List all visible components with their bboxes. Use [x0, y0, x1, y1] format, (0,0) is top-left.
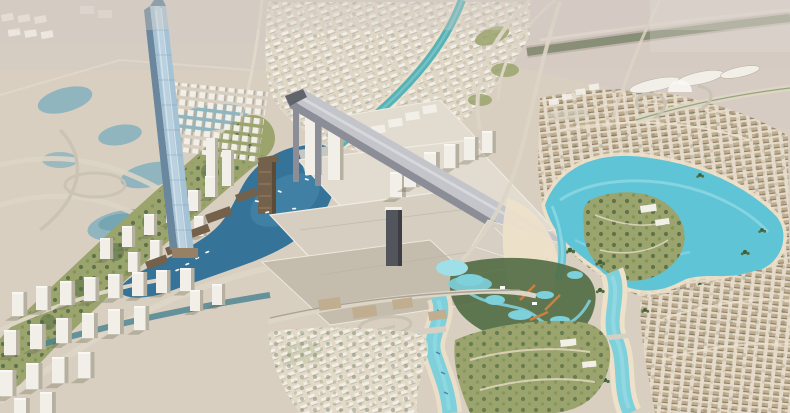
aerial-render-image: [0, 0, 790, 413]
atmosphere-overlay: [0, 0, 790, 413]
city-masterplan-illustration: [0, 0, 790, 413]
